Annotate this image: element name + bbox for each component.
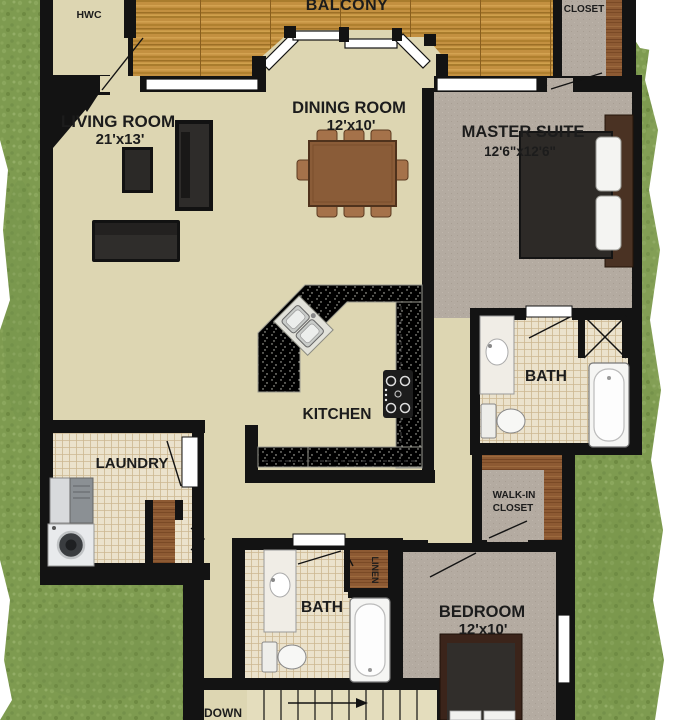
bath-second-vanity bbox=[264, 550, 296, 632]
living-room-dims: 21'x13' bbox=[96, 131, 145, 148]
tv-console bbox=[175, 120, 213, 211]
down-label: DOWN bbox=[204, 706, 242, 720]
bath-second-label: BATH bbox=[301, 599, 343, 616]
walkin-label-line2: CLOSET bbox=[493, 503, 534, 514]
dining-room-label: DINING ROOM bbox=[292, 99, 406, 117]
kitchen-counter-bottom bbox=[258, 447, 422, 467]
hwc-label: HWC bbox=[76, 9, 101, 21]
walkin-wood-side bbox=[544, 455, 562, 545]
walkin-label-line1: WALK-IN bbox=[493, 490, 536, 501]
bath-second-tub bbox=[350, 598, 390, 682]
washer-dryer bbox=[48, 478, 94, 566]
linen-label: LINEN bbox=[370, 557, 380, 584]
stove bbox=[383, 370, 413, 418]
bath-main-tub bbox=[589, 363, 629, 447]
master-window bbox=[437, 78, 537, 91]
dining-table-set bbox=[297, 130, 408, 217]
linen-closet-floor bbox=[348, 548, 388, 592]
bedroom-label: BEDROOM bbox=[439, 603, 525, 621]
master-suite-label: MASTER SUITE bbox=[462, 123, 585, 141]
bath-second-door bbox=[293, 534, 345, 546]
bath-main-door bbox=[526, 306, 572, 317]
bay-window-top-a bbox=[293, 31, 345, 40]
bedroom-window bbox=[558, 615, 570, 683]
sofa bbox=[92, 220, 180, 262]
closet-wood-strip bbox=[606, 0, 624, 78]
floor-plan-page: BALCONY HWC CLOSET LIVING ROOM 21'x13' D… bbox=[0, 0, 677, 720]
bath-main-label: BATH bbox=[525, 368, 567, 385]
bath-main-vanity bbox=[480, 316, 514, 394]
living-room-label: LIVING ROOM bbox=[61, 112, 175, 131]
balcony-label: BALCONY bbox=[306, 0, 389, 14]
laundry-door bbox=[182, 437, 198, 487]
side-table bbox=[122, 147, 153, 193]
living-room-window bbox=[146, 79, 258, 90]
laundry-label: LAUNDRY bbox=[96, 455, 169, 472]
entry-wood-floor bbox=[153, 500, 175, 563]
bedroom-dims: 12'x10' bbox=[459, 621, 508, 638]
bay-window-top-b bbox=[345, 39, 397, 48]
stairs-floor bbox=[247, 690, 437, 720]
kitchen-label: KITCHEN bbox=[303, 406, 372, 423]
dining-room-dims: 12'x10' bbox=[327, 117, 376, 134]
floor-plan-canvas: BALCONY HWC CLOSET LIVING ROOM 21'x13' D… bbox=[0, 0, 677, 720]
closet-label: CLOSET bbox=[564, 4, 605, 15]
master-suite-dims: 12'6"x12'6" bbox=[484, 144, 556, 159]
bedroom-bed bbox=[440, 634, 522, 720]
hall-lower-floor bbox=[245, 483, 478, 543]
